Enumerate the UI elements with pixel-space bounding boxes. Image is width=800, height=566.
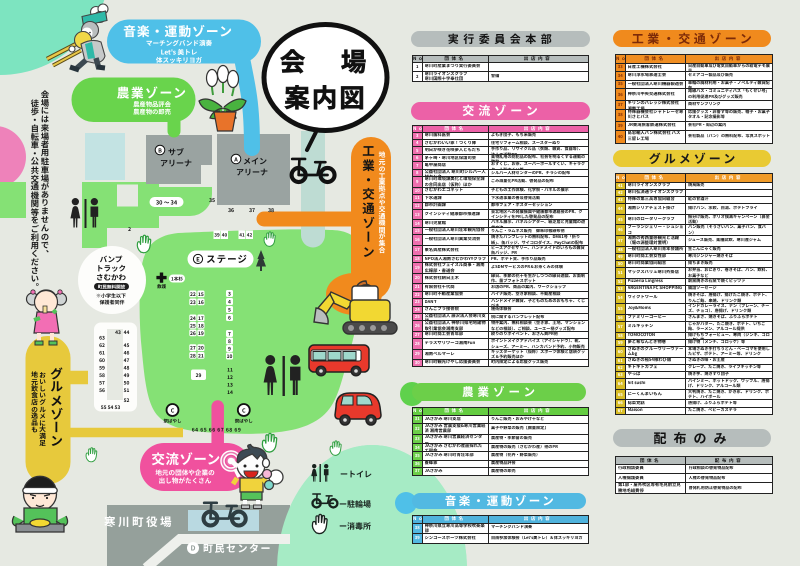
svg-text:47: 47 <box>124 357 130 364</box>
svg-text:2: 2 <box>128 226 131 233</box>
svg-text:11: 11 <box>227 367 233 374</box>
svg-text:13: 13 <box>227 382 233 389</box>
svg-text:63: 63 <box>99 335 105 342</box>
svg-text:ー駐輪場: ー駐輪場 <box>339 499 371 510</box>
svg-text:5: 5 <box>228 307 231 314</box>
svg-text:15: 15 <box>198 291 204 298</box>
svg-text:55 54 53: 55 54 53 <box>101 404 121 411</box>
svg-text:57: 57 <box>99 380 105 387</box>
svg-text:メイン: メイン <box>243 156 267 167</box>
svg-text:22: 22 <box>190 291 196 298</box>
svg-text:45: 45 <box>124 342 130 349</box>
svg-text:30 〜 34: 30 〜 34 <box>156 198 178 206</box>
svg-text:41: 41 <box>239 233 245 239</box>
svg-text:サブ: サブ <box>168 147 184 158</box>
svg-text:交流ゾーン: 交流ゾーン <box>151 448 220 468</box>
svg-text:D: D <box>191 544 196 554</box>
svg-text:6: 6 <box>228 315 231 322</box>
svg-text:40: 40 <box>222 233 228 239</box>
svg-text:43: 43 <box>115 329 121 336</box>
svg-text:12: 12 <box>227 374 233 381</box>
svg-text:町民無料開放: 町民無料開放 <box>98 284 126 290</box>
svg-text:祭ばやし: 祭ばやし <box>235 419 253 425</box>
svg-text:52: 52 <box>124 397 130 404</box>
svg-text:19: 19 <box>198 330 204 337</box>
svg-text:9: 9 <box>228 346 231 353</box>
svg-text:17: 17 <box>198 315 204 322</box>
svg-text:51: 51 <box>124 387 130 394</box>
svg-text:会 場: 会 場 <box>280 42 372 79</box>
svg-text:ステージ: ステージ <box>206 252 248 266</box>
svg-text:48: 48 <box>124 365 130 372</box>
svg-text:10: 10 <box>227 353 233 360</box>
svg-text:救護: 救護 <box>157 284 167 290</box>
svg-text:64 65 66 67 68 69: 64 65 66 67 68 69 <box>192 427 242 434</box>
svg-text:21: 21 <box>198 352 204 359</box>
svg-text:14: 14 <box>227 389 233 396</box>
svg-text:ートイレ: ートイレ <box>340 469 372 480</box>
svg-text:38: 38 <box>268 207 274 214</box>
svg-text:35: 35 <box>209 197 215 204</box>
svg-text:体スッキリヨガ: 体スッキリヨガ <box>156 55 203 65</box>
svg-text:44: 44 <box>124 329 130 336</box>
svg-text:49: 49 <box>124 372 130 379</box>
svg-text:寒川町役場: 寒川町役場 <box>104 514 174 530</box>
svg-text:農産物の即売: 農産物の即売 <box>133 107 171 116</box>
svg-text:42: 42 <box>247 233 253 239</box>
svg-text:25: 25 <box>190 322 196 329</box>
svg-text:3: 3 <box>228 291 231 298</box>
svg-text:C: C <box>171 406 175 414</box>
svg-text:58: 58 <box>99 372 105 379</box>
svg-text:案内図: 案内図 <box>284 78 367 115</box>
svg-text:ー消毒所: ー消毒所 <box>339 521 371 532</box>
svg-text:26: 26 <box>190 330 196 337</box>
svg-text:60: 60 <box>99 357 105 364</box>
svg-text:町民センター: 町民センター <box>203 540 272 555</box>
svg-text:62: 62 <box>99 342 105 349</box>
svg-text:8: 8 <box>228 338 231 345</box>
svg-text:46: 46 <box>124 350 130 357</box>
svg-text:出し物がたくさん: 出し物がたくさん <box>159 475 212 485</box>
svg-text:36: 36 <box>228 207 234 214</box>
svg-text:28: 28 <box>190 352 196 359</box>
svg-text:29: 29 <box>196 372 202 379</box>
svg-text:50: 50 <box>124 380 130 387</box>
svg-text:アリーナ: アリーナ <box>160 158 192 169</box>
svg-text:B: B <box>158 146 162 154</box>
svg-text:18: 18 <box>198 322 204 329</box>
svg-text:7: 7 <box>228 331 231 338</box>
svg-text:56: 56 <box>99 387 105 394</box>
svg-text:59: 59 <box>99 365 105 372</box>
svg-text:保護者同伴: 保護者同伴 <box>99 299 124 306</box>
svg-text:4: 4 <box>228 299 231 306</box>
svg-text:C: C <box>242 406 246 414</box>
svg-text:1本杉: 1本杉 <box>171 276 183 282</box>
svg-text:37: 37 <box>249 207 255 214</box>
svg-text:祭ばやし: 祭ばやし <box>164 419 182 425</box>
svg-text:E: E <box>196 254 200 263</box>
svg-text:27: 27 <box>190 345 196 352</box>
svg-text:24: 24 <box>190 315 196 322</box>
svg-text:さむかわ: さむかわ <box>96 272 126 283</box>
svg-text:A: A <box>233 155 238 163</box>
svg-text:16: 16 <box>198 299 204 306</box>
svg-text:39: 39 <box>214 233 220 239</box>
svg-text:23: 23 <box>190 299 196 306</box>
svg-text:20: 20 <box>198 345 204 352</box>
svg-text:アリーナ: アリーナ <box>236 167 268 178</box>
svg-text:61: 61 <box>99 350 105 357</box>
